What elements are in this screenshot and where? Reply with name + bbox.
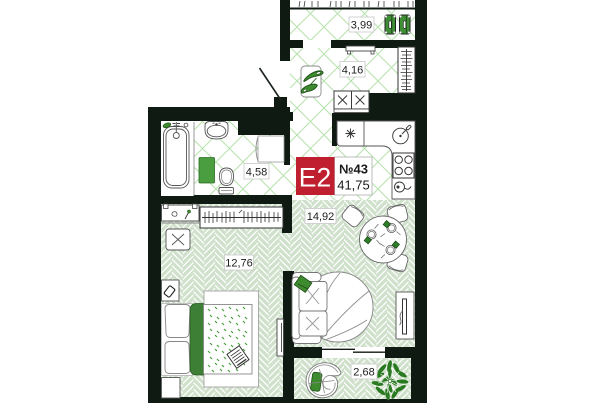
svg-text:14,92: 14,92 xyxy=(307,211,335,223)
svg-text:2,68: 2,68 xyxy=(353,367,374,379)
svg-text:41,75: 41,75 xyxy=(337,178,370,193)
svg-text:E2: E2 xyxy=(299,163,331,193)
svg-text:№43: №43 xyxy=(339,162,368,177)
svg-text:12,76: 12,76 xyxy=(225,258,253,270)
svg-text:4,16: 4,16 xyxy=(342,65,363,77)
svg-text:4,58: 4,58 xyxy=(246,167,267,179)
svg-text:3,99: 3,99 xyxy=(351,20,372,32)
